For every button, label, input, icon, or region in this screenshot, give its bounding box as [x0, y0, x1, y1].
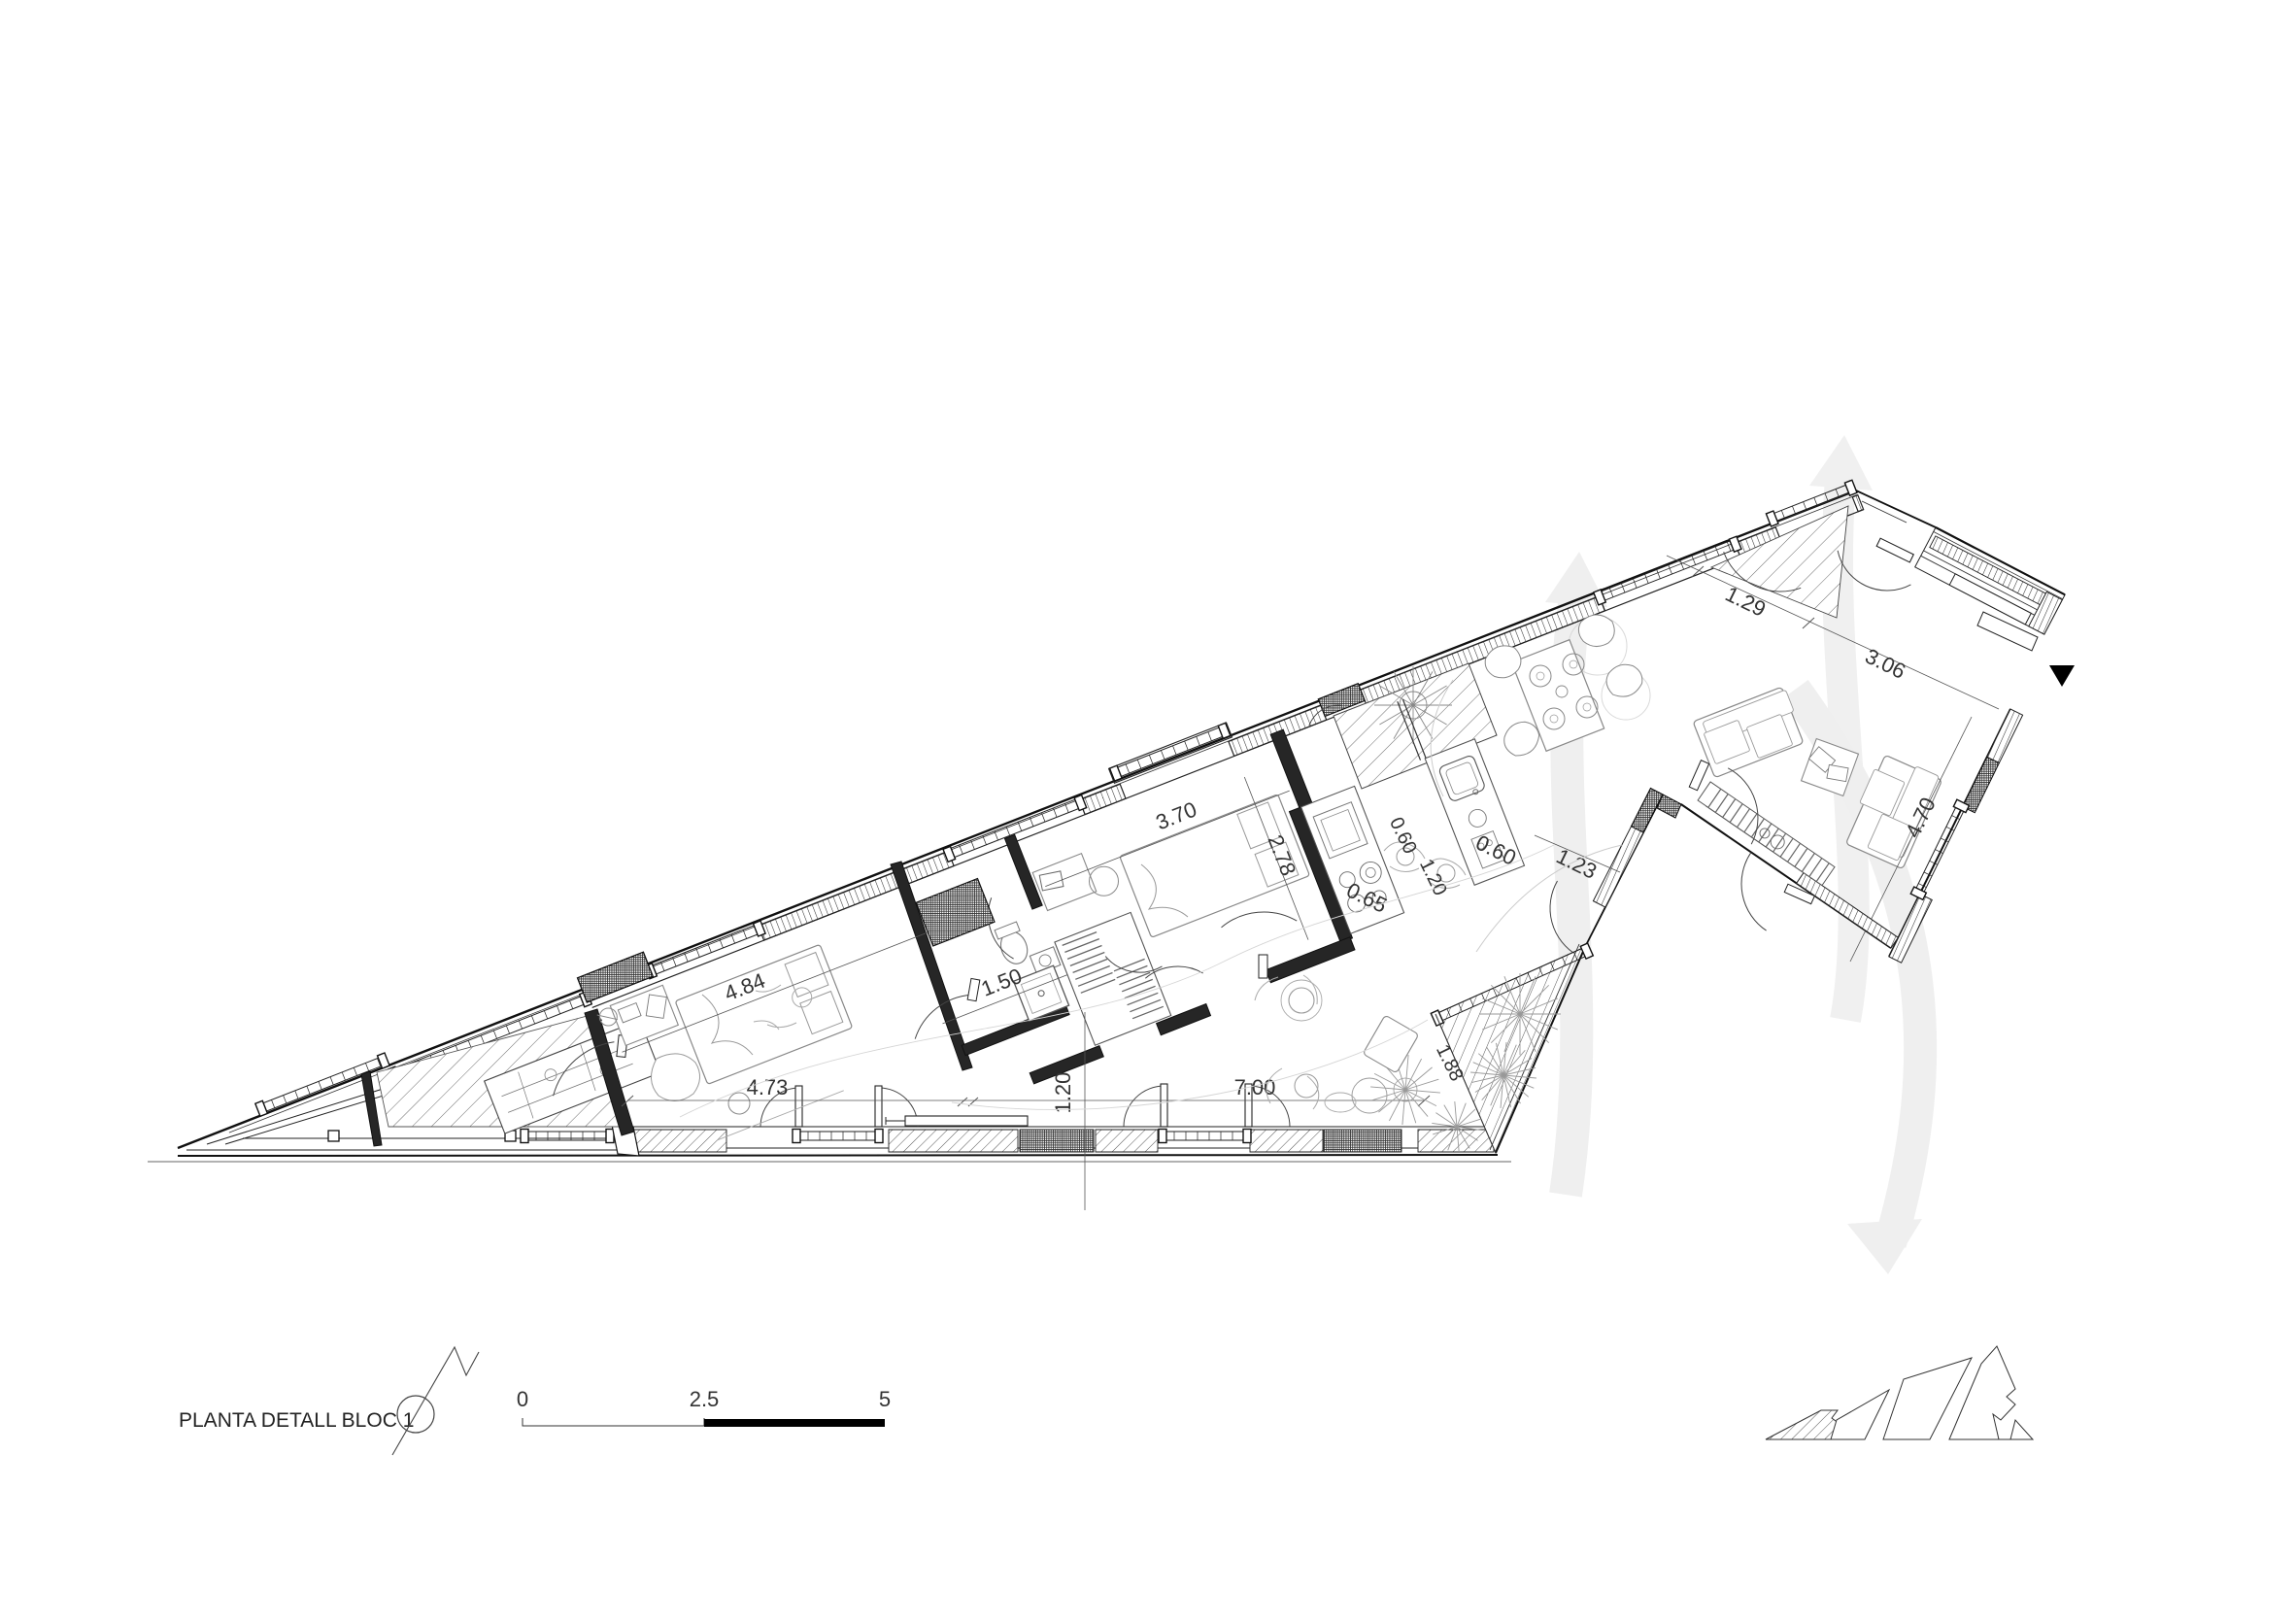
svg-text:1.20: 1.20 — [1051, 1072, 1075, 1114]
svg-text:2.5: 2.5 — [690, 1387, 720, 1411]
svg-text:0: 0 — [517, 1387, 528, 1411]
svg-text:PLANTA DETALL BLOC 1: PLANTA DETALL BLOC 1 — [179, 1409, 414, 1432]
svg-text:4.73: 4.73 — [747, 1075, 789, 1099]
svg-text:7.00: 7.00 — [1234, 1075, 1276, 1099]
svg-text:5: 5 — [879, 1387, 891, 1411]
